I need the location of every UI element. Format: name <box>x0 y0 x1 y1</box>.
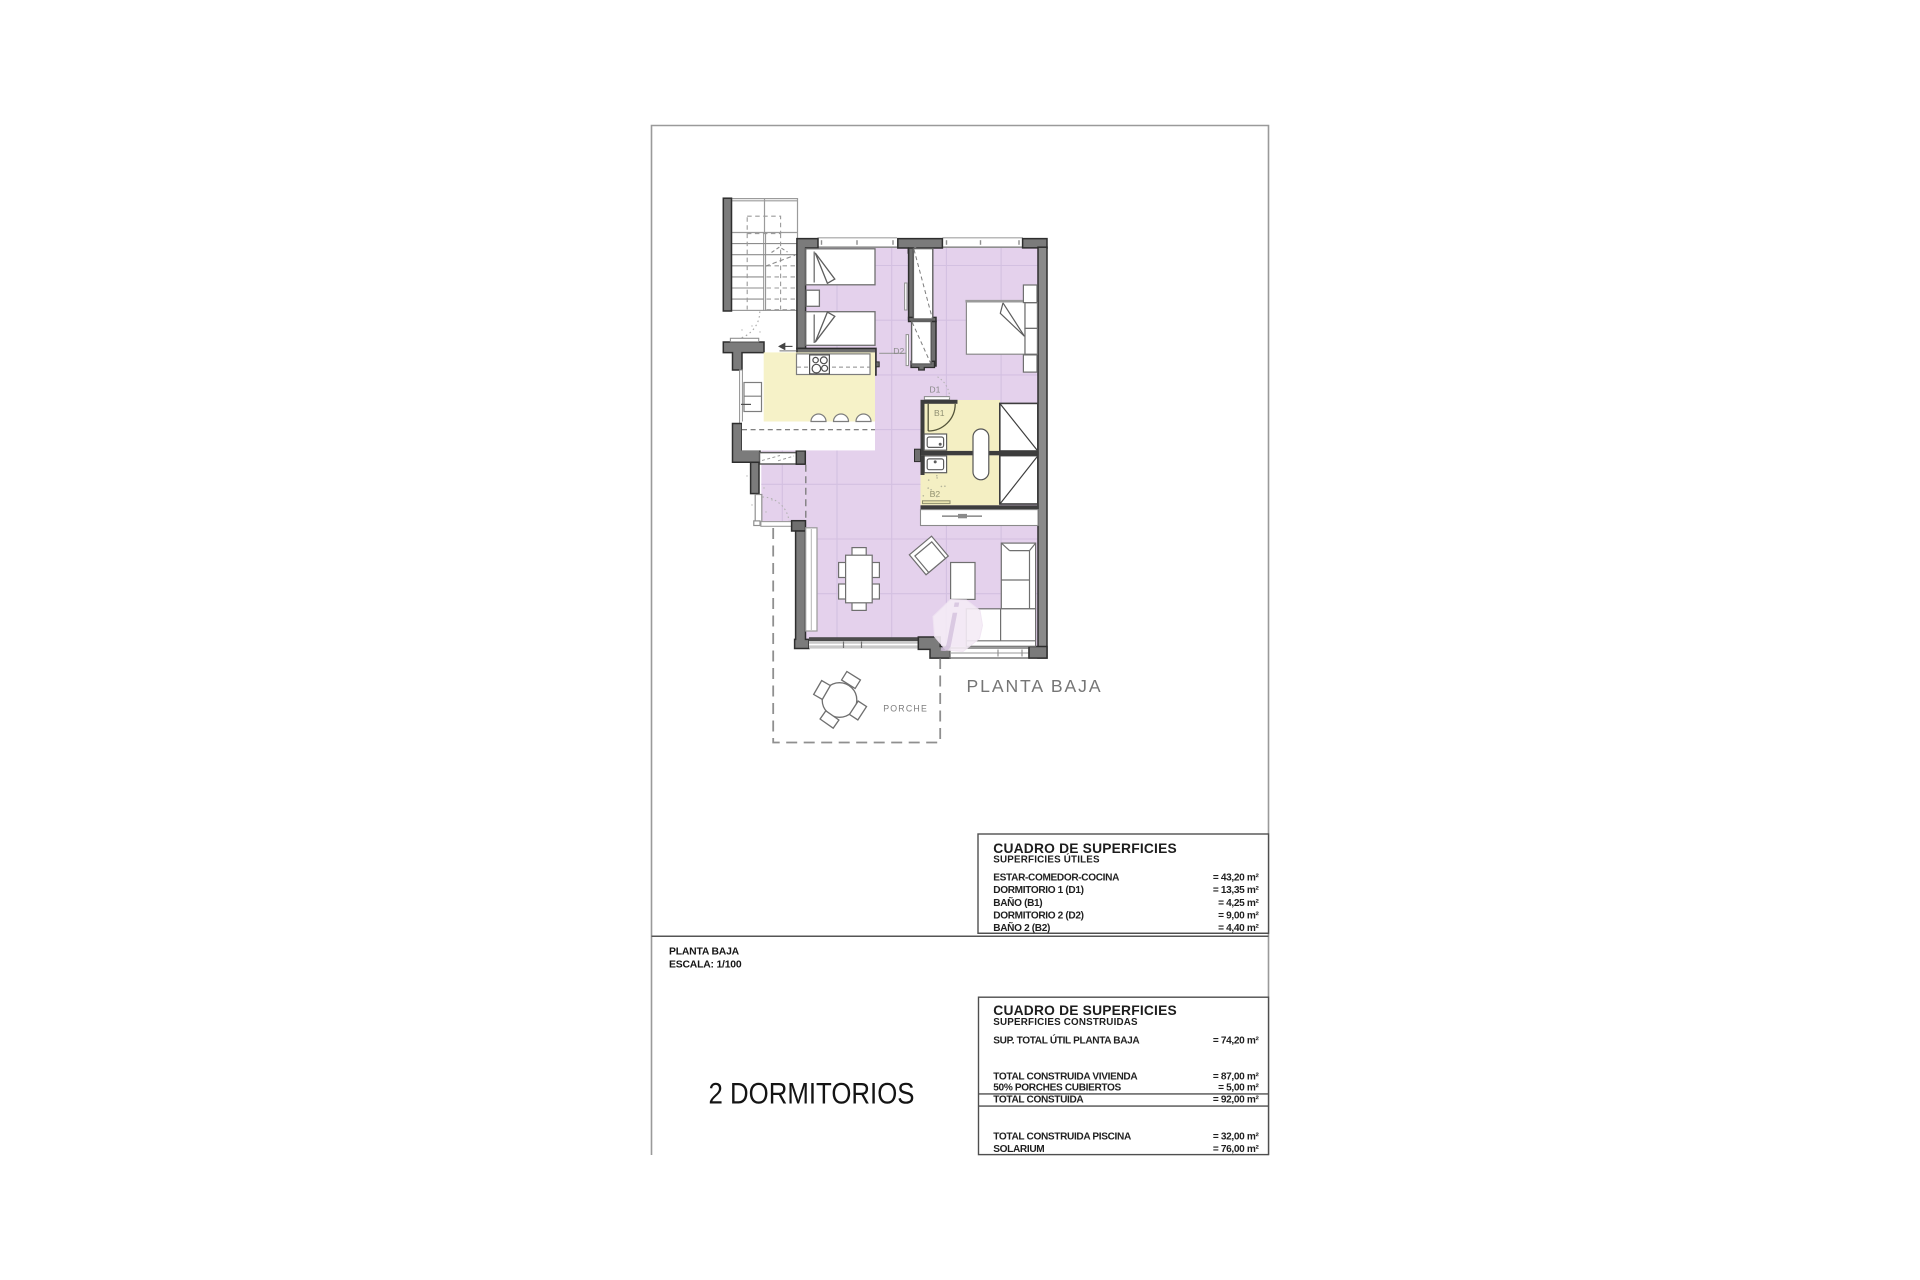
svg-text:TOTAL CONSTRUIDA PISCINA: TOTAL CONSTRUIDA PISCINA <box>993 1132 1132 1143</box>
svg-text:ESTAR-COMEDOR-COCINA: ESTAR-COMEDOR-COCINA <box>993 873 1120 884</box>
svg-text:PLANTA BAJA: PLANTA BAJA <box>669 947 740 958</box>
svg-text:SUPERFICIES CONSTRUIDAS: SUPERFICIES CONSTRUIDAS <box>993 1017 1138 1028</box>
svg-text:DORMITORIO 2 (D2): DORMITORIO 2 (D2) <box>993 910 1083 921</box>
svg-text:= 43,20 m²: = 43,20 m² <box>1213 873 1260 884</box>
svg-text:= 13,35 m²: = 13,35 m² <box>1213 885 1260 896</box>
svg-text:= 92,00 m²: = 92,00 m² <box>1213 1095 1260 1106</box>
svg-text:2 DORMITORIOS: 2 DORMITORIOS <box>709 1078 915 1111</box>
svg-text:= 87,00 m²: = 87,00 m² <box>1213 1071 1260 1082</box>
svg-text:= 9,00 m²: = 9,00 m² <box>1218 910 1259 921</box>
svg-text:SUPERFICIES ÚTILES: SUPERFICIES ÚTILES <box>993 853 1100 865</box>
svg-text:= 5,00 m²: = 5,00 m² <box>1218 1083 1259 1094</box>
svg-text:TOTAL CONSTUIDA: TOTAL CONSTUIDA <box>993 1095 1084 1106</box>
svg-text:TOTAL CONSTRUIDA VIVIENDA: TOTAL CONSTRUIDA VIVIENDA <box>993 1071 1138 1082</box>
svg-text:= 76,00 m²: = 76,00 m² <box>1213 1144 1260 1155</box>
svg-text:DORMITORIO 1 (D1): DORMITORIO 1 (D1) <box>993 885 1083 896</box>
svg-text:B1: B1 <box>934 408 945 418</box>
svg-text:= 4,25 m²: = 4,25 m² <box>1218 898 1259 909</box>
svg-text:PORCHE: PORCHE <box>883 704 928 714</box>
svg-text:D1: D1 <box>929 385 940 395</box>
svg-text:PLANTA BAJA: PLANTA BAJA <box>967 676 1103 696</box>
svg-text:= 74,20 m²: = 74,20 m² <box>1213 1036 1260 1047</box>
svg-text:CUADRO DE SUPERFICIES: CUADRO DE SUPERFICIES <box>993 1003 1177 1018</box>
svg-text:SUP. TOTAL ÚTIL PLANTA BAJA: SUP. TOTAL ÚTIL PLANTA BAJA <box>993 1034 1140 1047</box>
svg-text:B2: B2 <box>930 489 941 499</box>
svg-text:50% PORCHES CUBIERTOS: 50% PORCHES CUBIERTOS <box>993 1083 1121 1094</box>
svg-text:SOLARIUM: SOLARIUM <box>993 1144 1044 1155</box>
svg-text:BAÑO 2 (B2): BAÑO 2 (B2) <box>993 921 1050 934</box>
svg-text:BAÑO (B1): BAÑO (B1) <box>993 896 1042 909</box>
svg-text:D2: D2 <box>893 346 904 356</box>
svg-text:ESCALA: 1/100: ESCALA: 1/100 <box>669 960 742 971</box>
svg-text:= 4,40 m²: = 4,40 m² <box>1218 923 1259 934</box>
svg-text:= 32,00 m²: = 32,00 m² <box>1213 1132 1260 1143</box>
